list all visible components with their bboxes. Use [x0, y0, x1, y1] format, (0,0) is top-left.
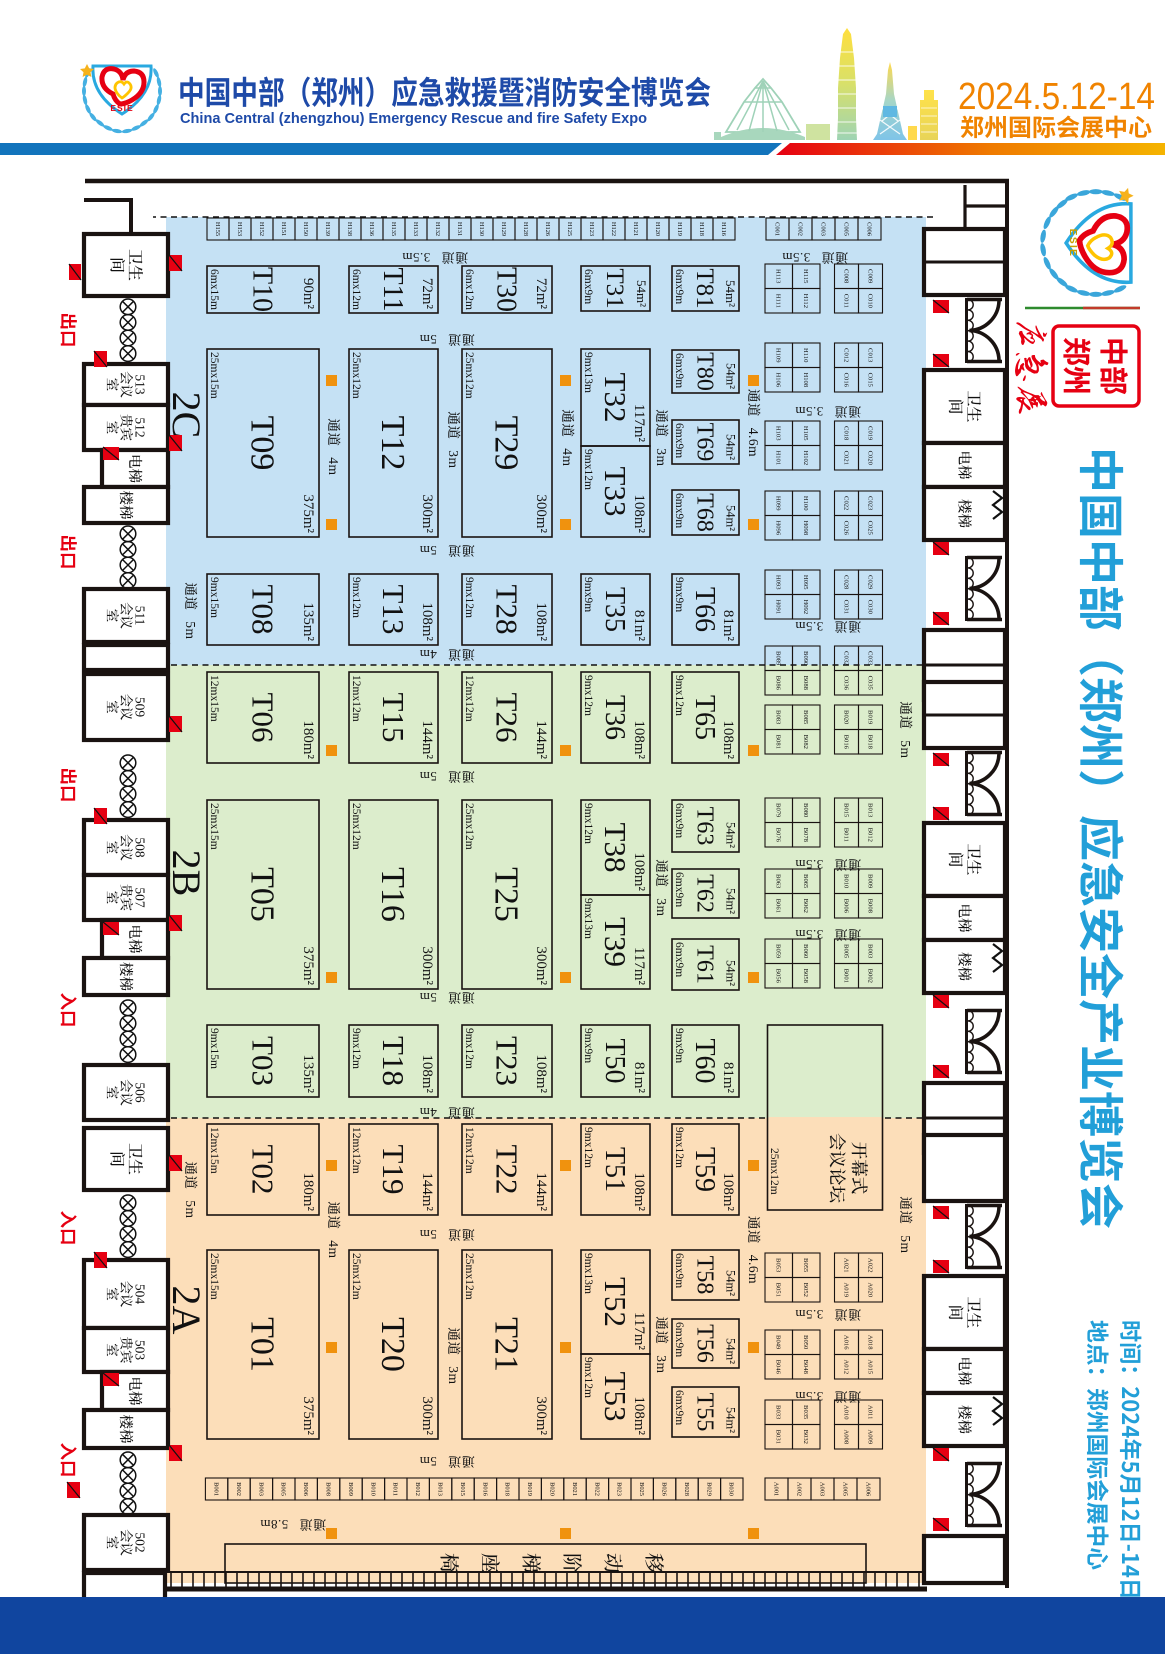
- svg-text:B001: B001: [213, 1482, 220, 1496]
- svg-text:入口: 入口: [56, 1443, 81, 1478]
- svg-text:H098: H098: [802, 520, 809, 535]
- svg-text:T18: T18: [376, 1036, 411, 1086]
- svg-text:楼梯: 楼梯: [954, 1405, 975, 1434]
- svg-text:T06: T06: [246, 693, 281, 743]
- svg-text:通道 4.6m: 通道 4.6m: [745, 1216, 765, 1284]
- svg-text:H139: H139: [324, 222, 331, 236]
- svg-text:T38: T38: [598, 823, 633, 873]
- svg-text:C023: C023: [866, 496, 873, 511]
- svg-text:C021: C021: [842, 451, 849, 465]
- svg-text:B088: B088: [802, 676, 809, 691]
- svg-text:117m²: 117m²: [631, 404, 647, 443]
- svg-text:T01: T01: [243, 1317, 280, 1372]
- svg-text:B083: B083: [775, 710, 782, 725]
- svg-text:T35: T35: [599, 587, 630, 632]
- svg-text:H126: H126: [544, 222, 551, 236]
- svg-text:H130: H130: [478, 222, 485, 236]
- svg-text:B012: B012: [414, 1482, 421, 1496]
- svg-text:144m²: 144m²: [419, 1172, 435, 1211]
- svg-text:T33: T33: [598, 467, 633, 517]
- svg-text:通道 3m: 通道 3m: [445, 1327, 465, 1384]
- svg-text:H123: H123: [588, 222, 595, 236]
- svg-text:B013: B013: [437, 1482, 444, 1496]
- svg-text:81m²: 81m²: [631, 1062, 647, 1094]
- svg-text:6mx9m: 6mx9m: [673, 803, 685, 838]
- svg-text:B048: B048: [802, 1360, 809, 1375]
- svg-text:间: 间: [945, 1304, 968, 1320]
- svg-text:H119: H119: [676, 222, 683, 236]
- svg-text:室: 室: [103, 1086, 123, 1100]
- svg-text:通道 5m: 通道 5m: [419, 989, 474, 1008]
- svg-text:90m²: 90m²: [300, 278, 316, 310]
- svg-text:B008: B008: [866, 899, 873, 914]
- svg-text:C030: C030: [866, 600, 873, 615]
- svg-text:T05: T05: [243, 867, 280, 922]
- svg-text:81m²: 81m²: [720, 610, 736, 642]
- svg-text:54m²: 54m²: [724, 822, 738, 848]
- svg-text:通道 5m: 通道 5m: [419, 1226, 474, 1245]
- svg-text:通道 3m: 通道 3m: [653, 409, 673, 466]
- svg-text:54m²: 54m²: [723, 280, 738, 307]
- svg-text:300m²: 300m²: [533, 1396, 549, 1435]
- svg-text:C015: C015: [866, 373, 873, 388]
- svg-text:室: 室: [103, 1343, 123, 1357]
- svg-text:电梯: 电梯: [954, 1357, 975, 1386]
- svg-text:T65: T65: [689, 695, 720, 740]
- svg-text:108m²: 108m²: [631, 852, 647, 891]
- svg-text:A001: A001: [772, 1482, 779, 1496]
- svg-text:108m²: 108m²: [533, 1054, 549, 1093]
- svg-text:T02: T02: [246, 1145, 281, 1195]
- svg-text:117m²: 117m²: [631, 947, 647, 986]
- svg-text:H093: H093: [775, 575, 782, 590]
- svg-text:T13: T13: [376, 585, 411, 635]
- svg-text:H099: H099: [775, 496, 782, 511]
- svg-text:9mx12m: 9mx12m: [463, 1028, 475, 1069]
- svg-text:H101: H101: [775, 450, 782, 465]
- svg-text:C020: C020: [866, 451, 873, 466]
- svg-text:117m²: 117m²: [631, 1312, 647, 1351]
- svg-text:2B: 2B: [164, 850, 209, 897]
- svg-text:B015: B015: [842, 803, 849, 818]
- svg-text:C036: C036: [842, 676, 849, 691]
- svg-text:楼梯: 楼梯: [954, 952, 975, 981]
- svg-text:B079: B079: [775, 803, 782, 818]
- svg-text:T32: T32: [598, 373, 633, 423]
- svg-text:300m²: 300m²: [533, 494, 549, 533]
- svg-text:B002: B002: [235, 1482, 242, 1496]
- svg-text:室: 室: [103, 1536, 123, 1550]
- svg-text:电梯: 电梯: [125, 925, 146, 954]
- svg-text:B059: B059: [775, 944, 782, 959]
- svg-text:A009: A009: [866, 1429, 873, 1444]
- svg-text:A021: A021: [842, 1258, 849, 1273]
- svg-text:H150: H150: [302, 222, 309, 236]
- svg-text:通道 5m: 通道 5m: [419, 542, 474, 561]
- svg-text:A019: A019: [842, 1282, 849, 1297]
- svg-text:9mx13m: 9mx13m: [582, 352, 594, 393]
- svg-text:通道 4m: 通道 4m: [419, 1104, 474, 1123]
- svg-text:54m²: 54m²: [724, 363, 738, 389]
- svg-text:T25: T25: [487, 867, 524, 922]
- svg-text:135m²: 135m²: [300, 602, 316, 641]
- svg-text:电梯: 电梯: [954, 904, 975, 933]
- svg-text:B013: B013: [866, 803, 873, 818]
- svg-text:出口: 出口: [56, 535, 81, 570]
- svg-text:H120: H120: [654, 222, 661, 236]
- svg-text:B076: B076: [775, 828, 782, 843]
- svg-text:通道 3.5m: 通道 3.5m: [795, 1306, 861, 1325]
- svg-text:T26: T26: [490, 693, 525, 743]
- svg-text:通道 5m: 通道 5m: [182, 582, 202, 639]
- svg-text:B065: B065: [802, 874, 809, 889]
- svg-text:C016: C016: [842, 373, 849, 388]
- svg-text:25mx12m: 25mx12m: [463, 1253, 475, 1300]
- svg-text:T55: T55: [691, 1393, 717, 1432]
- svg-text:B063: B063: [775, 874, 782, 889]
- svg-text:B015: B015: [459, 1482, 466, 1496]
- svg-text:9mx12m: 9mx12m: [463, 577, 475, 618]
- svg-text:C032: C032: [842, 651, 849, 665]
- svg-text:地点：郑州国际会展中心: 地点：郑州国际会展中心: [1082, 1320, 1116, 1570]
- svg-text:25mx12m: 25mx12m: [350, 803, 362, 850]
- svg-text:12mx12m: 12mx12m: [463, 675, 475, 722]
- svg-text:T36: T36: [599, 695, 630, 740]
- svg-text:B020: B020: [549, 1482, 556, 1496]
- svg-text:300m²: 300m²: [419, 1396, 435, 1435]
- svg-text:108m²: 108m²: [419, 602, 435, 641]
- svg-text:通道 3.5m: 通道 3.5m: [795, 1388, 861, 1407]
- svg-text:108m²: 108m²: [631, 1172, 647, 1211]
- svg-text:B086: B086: [775, 676, 782, 691]
- svg-text:B023: B023: [616, 1482, 623, 1496]
- svg-text:25mx12m: 25mx12m: [350, 352, 362, 399]
- svg-text:B003: B003: [866, 944, 873, 959]
- svg-text:T31: T31: [601, 268, 628, 308]
- svg-text:A012: A012: [842, 1359, 849, 1374]
- svg-text:室: 室: [103, 891, 123, 905]
- svg-text:375m²: 375m²: [300, 1396, 316, 1435]
- svg-text:B033: B033: [775, 1405, 782, 1420]
- svg-text:A022: A022: [866, 1258, 873, 1273]
- svg-text:25mx15m: 25mx15m: [208, 352, 220, 399]
- svg-text:T80: T80: [691, 352, 717, 391]
- svg-text:H106: H106: [775, 372, 782, 387]
- svg-text:应急展: 应急展: [1012, 317, 1049, 417]
- svg-text:T66: T66: [689, 587, 720, 632]
- svg-text:T62: T62: [691, 874, 717, 913]
- svg-text:通道 5.8m: 通道 5.8m: [260, 1516, 326, 1535]
- svg-text:H122: H122: [610, 222, 617, 236]
- svg-text:A006: A006: [864, 1482, 871, 1496]
- svg-text:B031: B031: [775, 1430, 782, 1444]
- svg-text:B001: B001: [842, 969, 849, 983]
- svg-text:54m²: 54m²: [724, 1407, 738, 1433]
- svg-text:T59: T59: [689, 1147, 720, 1192]
- svg-text:H095: H095: [802, 575, 809, 590]
- svg-text:阶: 阶: [559, 1553, 588, 1573]
- svg-text:通道 3m: 通道 3m: [445, 411, 465, 468]
- svg-text:B051: B051: [775, 1283, 782, 1297]
- svg-text:108m²: 108m²: [419, 1054, 435, 1093]
- svg-text:China Central (zhengzhou) Emer: China Central (zhengzhou) Emergency Resc…: [180, 111, 647, 127]
- svg-text:H138: H138: [346, 222, 353, 236]
- svg-text:室: 室: [103, 1287, 123, 1301]
- svg-text:间: 间: [945, 851, 968, 867]
- svg-text:9mx12m: 9mx12m: [350, 1028, 362, 1069]
- svg-text:C003: C003: [819, 222, 826, 236]
- svg-text:H125: H125: [566, 222, 573, 236]
- svg-text:B010: B010: [842, 874, 849, 889]
- svg-text:9mx12m: 9mx12m: [350, 577, 362, 618]
- svg-text:25mx12m: 25mx12m: [768, 1148, 780, 1195]
- svg-text:H116: H116: [720, 222, 727, 236]
- svg-text:6mx9m: 6mx9m: [673, 269, 685, 304]
- svg-text:144m²: 144m²: [419, 720, 435, 759]
- svg-text:H121: H121: [632, 222, 639, 236]
- svg-text:C035: C035: [866, 676, 873, 691]
- svg-text:6mx9m: 6mx9m: [673, 493, 685, 528]
- svg-text:间: 间: [945, 398, 968, 414]
- svg-text:C022: C022: [842, 496, 849, 510]
- svg-text:T15: T15: [376, 693, 411, 743]
- svg-text:6mx12m: 6mx12m: [350, 269, 362, 310]
- svg-text:H135: H135: [390, 222, 397, 236]
- svg-text:9mx12m: 9mx12m: [582, 449, 594, 490]
- svg-text:C025: C025: [866, 521, 873, 536]
- svg-text:108m²: 108m²: [631, 494, 647, 533]
- svg-text:梯: 梯: [518, 1553, 547, 1573]
- svg-text:T51: T51: [599, 1147, 630, 1192]
- svg-text:间: 间: [106, 257, 129, 273]
- svg-text:375m²: 375m²: [300, 494, 316, 533]
- svg-text:H128: H128: [522, 222, 529, 236]
- svg-text:A005: A005: [841, 1482, 848, 1496]
- svg-text:B016: B016: [481, 1482, 488, 1496]
- svg-text:H112: H112: [802, 294, 809, 308]
- svg-text:C018: C018: [842, 426, 849, 441]
- svg-text:H133: H133: [412, 222, 419, 236]
- svg-text:72m²: 72m²: [419, 278, 435, 310]
- svg-text:B005: B005: [842, 944, 849, 959]
- svg-text:T22: T22: [490, 1145, 525, 1195]
- svg-text:通道 3.5m: 通道 3.5m: [795, 618, 861, 637]
- svg-text:T29: T29: [487, 416, 524, 471]
- svg-text:B056: B056: [775, 969, 782, 984]
- svg-text:B062: B062: [802, 899, 809, 913]
- svg-text:C005: C005: [842, 222, 849, 236]
- svg-text:B061: B061: [775, 899, 782, 913]
- svg-text:108m²: 108m²: [720, 1172, 736, 1211]
- svg-text:电梯: 电梯: [954, 451, 975, 480]
- svg-text:H129: H129: [500, 222, 507, 236]
- svg-text:入口: 入口: [56, 993, 81, 1028]
- svg-text:54m²: 54m²: [724, 888, 738, 914]
- svg-text:楼梯: 楼梯: [116, 962, 137, 991]
- svg-text:T16: T16: [374, 867, 411, 922]
- svg-text:H108: H108: [802, 372, 809, 387]
- svg-text:B082: B082: [802, 735, 809, 749]
- svg-text:B009: B009: [347, 1482, 354, 1496]
- svg-text:9mx15m: 9mx15m: [208, 1028, 220, 1069]
- svg-text:B005: B005: [280, 1482, 287, 1496]
- svg-text:入口: 入口: [56, 1211, 81, 1246]
- svg-text:会议论坛: 会议论坛: [825, 1133, 850, 1203]
- svg-text:T19: T19: [376, 1145, 411, 1195]
- svg-text:375m²: 375m²: [300, 946, 316, 985]
- svg-text:H091: H091: [775, 599, 782, 614]
- svg-text:9mx12m: 9mx12m: [582, 1357, 594, 1398]
- svg-text:12mx12m: 12mx12m: [463, 1127, 475, 1174]
- svg-text:C009: C009: [866, 269, 873, 284]
- svg-text:H136: H136: [368, 222, 375, 236]
- svg-text:B081: B081: [775, 735, 782, 749]
- svg-text:144m²: 144m²: [533, 1172, 549, 1211]
- svg-text:B060: B060: [802, 944, 809, 959]
- svg-text:B085: B085: [802, 710, 809, 725]
- svg-text:A011: A011: [866, 1405, 873, 1419]
- svg-text:C001: C001: [773, 222, 780, 236]
- svg-text:H115: H115: [802, 269, 809, 284]
- svg-text:通道 5m: 通道 5m: [897, 701, 917, 758]
- svg-text:25mx12m: 25mx12m: [463, 352, 475, 399]
- svg-text:B012: B012: [866, 828, 873, 842]
- svg-text:180m²: 180m²: [300, 1172, 316, 1211]
- svg-text:B055: B055: [802, 1258, 809, 1273]
- svg-text:H151: H151: [280, 222, 287, 236]
- svg-text:135m²: 135m²: [300, 1054, 316, 1093]
- svg-text:T56: T56: [691, 1324, 717, 1363]
- svg-text:T03: T03: [246, 1036, 281, 1086]
- svg-text:9mx12m: 9mx12m: [673, 1127, 685, 1168]
- svg-text:T28: T28: [490, 585, 525, 635]
- svg-text:中国中部（郑州）应急救援暨消防安全博览会: 中国中部（郑州）应急救援暨消防安全博览会: [178, 68, 711, 114]
- svg-text:B019: B019: [866, 710, 873, 725]
- svg-text:B046: B046: [775, 1360, 782, 1375]
- svg-text:9mx12m: 9mx12m: [582, 1127, 594, 1168]
- svg-text:B026: B026: [661, 1482, 668, 1496]
- svg-text:楼梯: 楼梯: [116, 491, 137, 520]
- svg-text:B006: B006: [842, 899, 849, 914]
- svg-text:2A: 2A: [164, 1286, 209, 1335]
- svg-text:B021: B021: [571, 1482, 578, 1496]
- svg-text:楼梯: 楼梯: [116, 1415, 137, 1444]
- svg-text:郑州国际会展中心: 郑州国际会展中心: [960, 108, 1152, 143]
- svg-text:9mx13m: 9mx13m: [582, 898, 594, 939]
- svg-text:通道 3.5m: 通道 3.5m: [402, 249, 468, 268]
- svg-text:C002: C002: [796, 222, 803, 236]
- svg-text:9mx9m: 9mx9m: [673, 1028, 685, 1063]
- svg-text:A020: A020: [866, 1282, 873, 1297]
- svg-text:108m²: 108m²: [533, 602, 549, 641]
- svg-text:6mx9m: 6mx9m: [582, 269, 594, 304]
- svg-text:通道 3.5m: 通道 3.5m: [795, 926, 861, 945]
- svg-text:54m²: 54m²: [724, 1270, 738, 1296]
- svg-text:中国中部（郑州）应急安全产业博览会: 中国中部（郑州）应急安全产业博览会: [1070, 447, 1136, 1229]
- svg-text:300m²: 300m²: [419, 494, 435, 533]
- svg-text:动: 动: [600, 1553, 629, 1573]
- svg-text:12mx12m: 12mx12m: [350, 675, 362, 722]
- svg-text:A016: A016: [842, 1335, 849, 1350]
- svg-text:B089: B089: [775, 651, 782, 666]
- svg-text:通道 5m: 通道 5m: [182, 1161, 202, 1218]
- svg-text:椅: 椅: [436, 1553, 465, 1573]
- svg-text:B008: B008: [325, 1482, 332, 1496]
- svg-text:移: 移: [641, 1553, 670, 1573]
- svg-text:通道 4m: 通道 4m: [559, 409, 579, 466]
- svg-text:B028: B028: [683, 1482, 690, 1496]
- svg-text:H096: H096: [775, 520, 782, 535]
- svg-text:6mx15m: 6mx15m: [208, 269, 220, 310]
- svg-text:81m²: 81m²: [720, 1062, 736, 1094]
- svg-text:T81: T81: [691, 268, 718, 308]
- svg-text:6mx9m: 6mx9m: [673, 353, 685, 388]
- svg-text:A018: A018: [866, 1335, 873, 1350]
- svg-text:T68: T68: [691, 493, 717, 532]
- svg-text:通道 5m: 通道 5m: [419, 768, 474, 787]
- svg-text:9mx12m: 9mx12m: [582, 803, 594, 844]
- svg-text:12mx15m: 12mx15m: [208, 675, 220, 722]
- svg-text:A002: A002: [795, 1482, 802, 1496]
- svg-text:出口: 出口: [56, 768, 81, 803]
- svg-text:H102: H102: [802, 450, 809, 465]
- svg-text:C033: C033: [866, 651, 873, 666]
- svg-text:6mx9m: 6mx9m: [673, 1390, 685, 1425]
- svg-text:B058: B058: [802, 969, 809, 984]
- svg-text:ESIE: ESIE: [1067, 229, 1078, 257]
- svg-text:T09: T09: [243, 416, 280, 471]
- svg-text:B019: B019: [526, 1482, 533, 1496]
- svg-text:B078: B078: [802, 828, 809, 843]
- svg-text:25mx15m: 25mx15m: [208, 1253, 220, 1300]
- svg-text:9mx12m: 9mx12m: [673, 675, 685, 716]
- svg-text:B018: B018: [504, 1482, 511, 1496]
- svg-text:C008: C008: [842, 269, 849, 284]
- svg-text:C013: C013: [866, 348, 873, 363]
- svg-text:2C: 2C: [164, 392, 209, 439]
- svg-text:B022: B022: [593, 1482, 600, 1496]
- svg-text:108m²: 108m²: [631, 720, 647, 759]
- svg-text:A008: A008: [842, 1429, 849, 1444]
- svg-text:通道 4m: 通道 4m: [325, 418, 345, 475]
- svg-text:25mx12m: 25mx12m: [350, 1253, 362, 1300]
- svg-text:T23: T23: [490, 1036, 525, 1086]
- svg-text:54m²: 54m²: [634, 280, 649, 307]
- svg-text:C010: C010: [866, 294, 873, 309]
- svg-text:C029: C029: [866, 575, 873, 590]
- svg-text:通道 3.5m: 通道 3.5m: [795, 403, 861, 422]
- svg-text:6mx9m: 6mx9m: [673, 423, 685, 458]
- svg-text:300m²: 300m²: [419, 946, 435, 985]
- svg-text:T21: T21: [487, 1317, 524, 1372]
- svg-text:楼梯: 楼梯: [954, 499, 975, 528]
- svg-text:72m²: 72m²: [533, 278, 549, 310]
- svg-text:H109: H109: [775, 348, 782, 363]
- svg-text:T08: T08: [246, 585, 281, 635]
- svg-text:C026: C026: [842, 521, 849, 536]
- svg-text:H111: H111: [775, 294, 782, 308]
- svg-text:座: 座: [477, 1553, 506, 1573]
- svg-text:H153: H153: [236, 222, 243, 236]
- svg-text:B010: B010: [369, 1482, 376, 1496]
- svg-text:ESIE: ESIE: [110, 103, 133, 113]
- svg-text:H152: H152: [258, 222, 265, 236]
- svg-text:T61: T61: [691, 945, 717, 984]
- svg-text:通道 3.5m: 通道 3.5m: [795, 856, 861, 875]
- svg-text:C011: C011: [842, 294, 849, 308]
- svg-text:108m²: 108m²: [631, 1396, 647, 1435]
- svg-text:B049: B049: [775, 1335, 782, 1350]
